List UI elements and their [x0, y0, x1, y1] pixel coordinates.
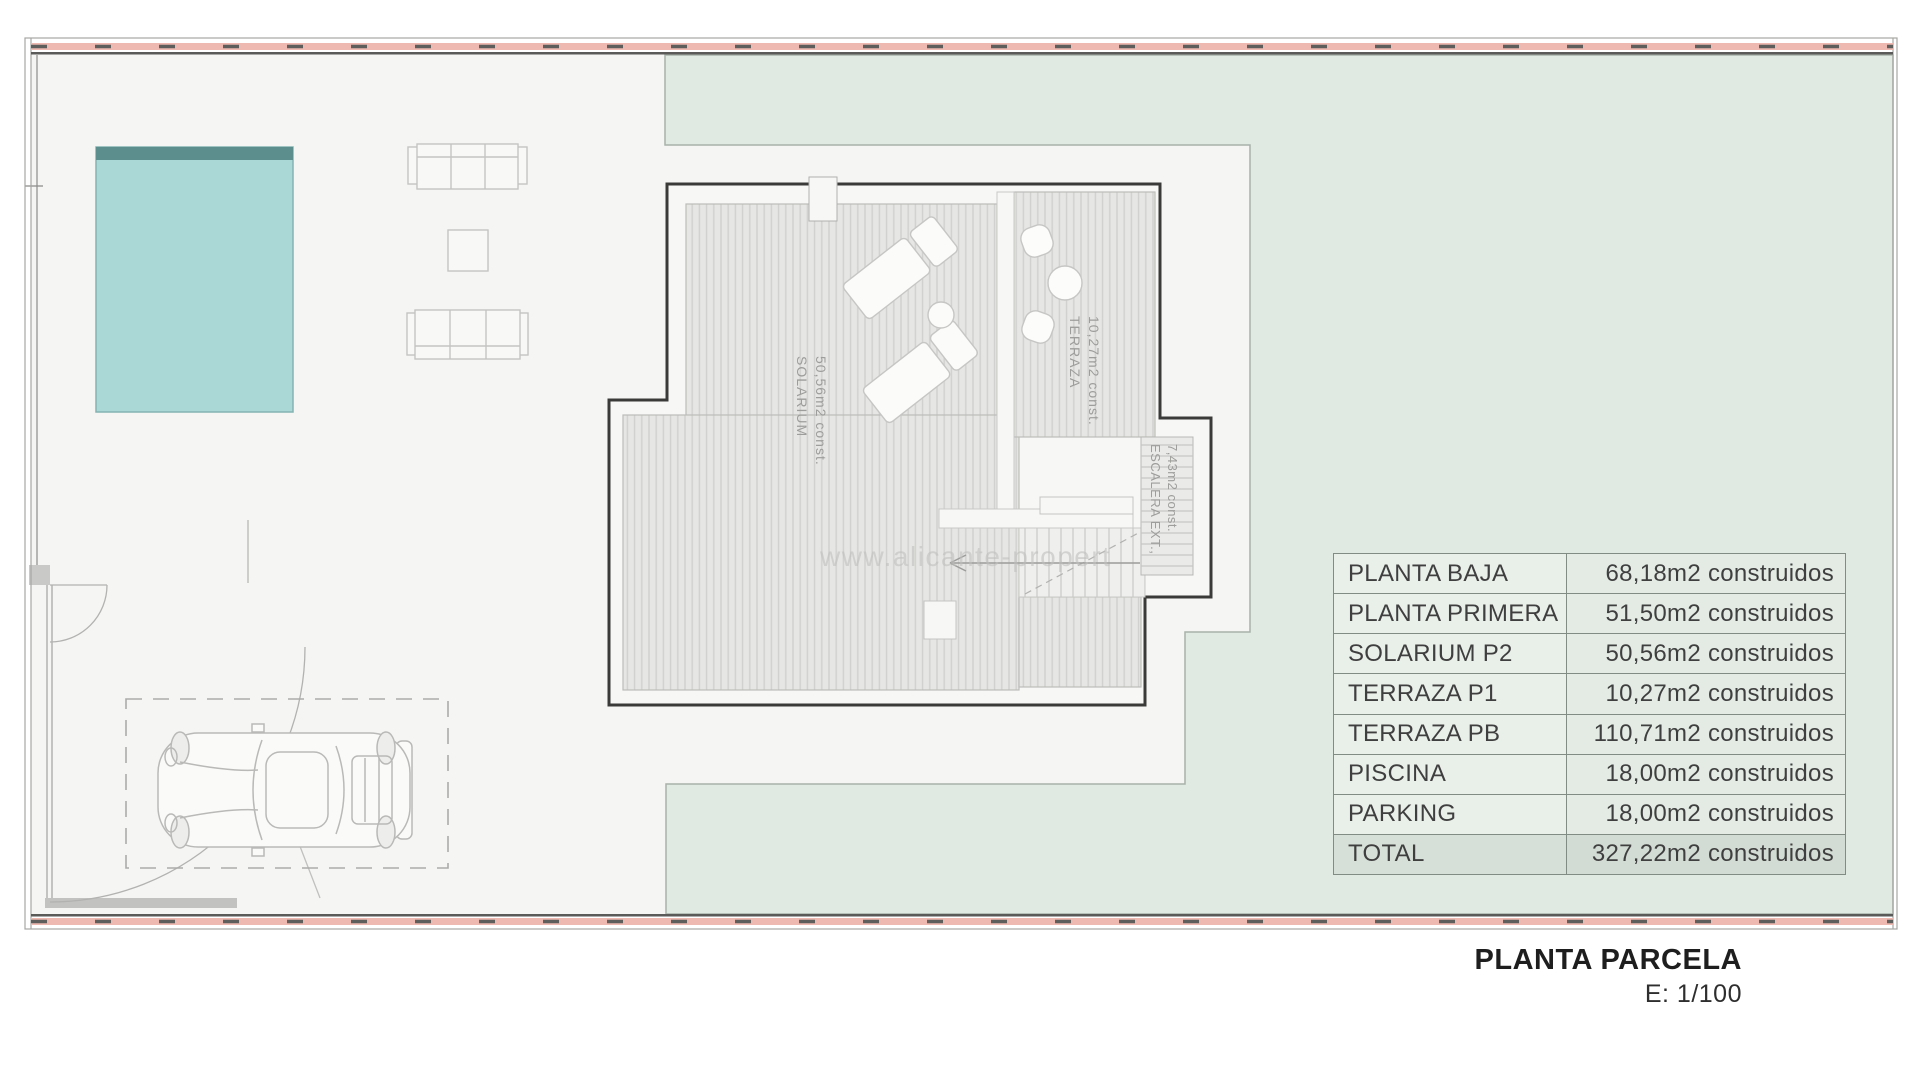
area-label-cell: TERRAZA PB	[1334, 715, 1566, 754]
table-row: TERRAZA PB 110,71m2 construidos	[1334, 714, 1845, 754]
area-label-cell: TERRAZA P1	[1334, 674, 1566, 713]
bottom-wall	[45, 898, 237, 908]
escalera-area-label: 7,43m2 const.	[1165, 444, 1180, 532]
top-frame-band	[31, 43, 1893, 50]
table-row: PISCINA 18,00m2 construidos	[1334, 754, 1845, 794]
area-value-cell: 18,00m2 construidos	[1566, 755, 1845, 794]
area-label-cell: PISCINA	[1334, 755, 1566, 794]
table-row-total: TOTAL 327,22m2 construidos	[1334, 834, 1845, 874]
divider-wall	[997, 192, 1014, 509]
lower-right-roof-area	[1019, 597, 1141, 687]
area-label-cell: PLANTA BAJA	[1334, 554, 1566, 593]
chimney-notch	[809, 177, 837, 221]
area-value-cell: 327,22m2 construidos	[1566, 835, 1845, 874]
building	[609, 177, 1211, 705]
area-label-cell: PLANTA PRIMERA	[1334, 594, 1566, 633]
table-row: PLANTA BAJA 68,18m2 construidos	[1334, 554, 1845, 593]
table-row: PLANTA PRIMERA 51,50m2 construidos	[1334, 593, 1845, 633]
solarium-area-label: 50,56m2 const.	[813, 356, 829, 466]
plan-scale: E: 1/100	[1475, 980, 1742, 1009]
title-block: PLANTA PARCELA E: 1/100	[1475, 944, 1742, 1009]
area-value-cell: 50,56m2 construidos	[1566, 634, 1845, 673]
area-value-cell: 10,27m2 construidos	[1566, 674, 1845, 713]
round-table	[1048, 266, 1082, 300]
terraza-label: TERRAZA	[1067, 316, 1083, 388]
area-label-cell: PARKING	[1334, 795, 1566, 834]
area-table: PLANTA BAJA 68,18m2 construidos PLANTA P…	[1333, 553, 1846, 875]
watermark: www.alicante-propert	[819, 541, 1111, 572]
plan-title: PLANTA PARCELA	[1475, 944, 1742, 977]
wall-notch	[924, 601, 956, 639]
table-row: SOLARIUM P2 50,56m2 construidos	[1334, 633, 1845, 673]
area-label-cell: TOTAL	[1334, 835, 1566, 874]
area-value-cell: 18,00m2 construidos	[1566, 795, 1845, 834]
area-value-cell: 68,18m2 construidos	[1566, 554, 1845, 593]
door-jamb-wall	[29, 565, 50, 585]
site-plan-sheet: SOLARIUM 50,56m2 const. TERRAZA 10,27m2 …	[0, 0, 1920, 1080]
plan-drawing: SOLARIUM 50,56m2 const. TERRAZA 10,27m2 …	[0, 0, 1920, 1080]
area-label-cell: SOLARIUM P2	[1334, 634, 1566, 673]
sofa-bottom	[407, 310, 528, 359]
escalera-label: ESCALERA EXT.,	[1148, 444, 1163, 554]
area-value-cell: 51,50m2 construidos	[1566, 594, 1845, 633]
table-row: TERRAZA P1 10,27m2 construidos	[1334, 673, 1845, 713]
side-table	[928, 302, 954, 328]
area-value-cell: 110,71m2 construidos	[1566, 715, 1845, 754]
stair-landing	[1040, 497, 1133, 514]
bottom-frame-band	[31, 918, 1893, 925]
solarium-label: SOLARIUM	[794, 356, 810, 437]
coffee-table	[448, 230, 488, 271]
table-row: PARKING 18,00m2 construidos	[1334, 794, 1845, 834]
sofa-top	[408, 144, 527, 189]
swimming-pool	[96, 147, 293, 412]
terraza-area-label: 10,27m2 const.	[1086, 316, 1102, 426]
car	[158, 724, 412, 856]
